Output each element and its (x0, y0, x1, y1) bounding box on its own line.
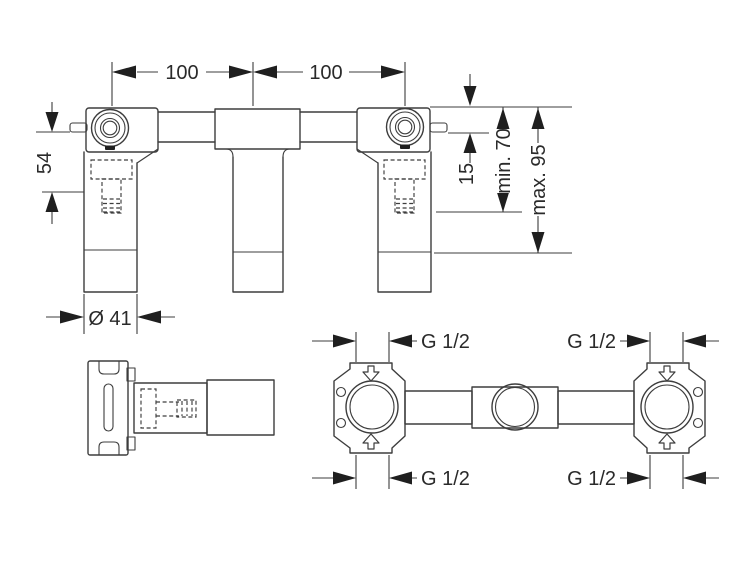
plate-notch-top (99, 361, 119, 374)
arrowhead (627, 472, 650, 485)
screw-hole (694, 388, 703, 397)
thread-label-bottom-right: G 1/2 (567, 468, 616, 490)
plate-notch-bottom (99, 442, 119, 455)
bar-left-segment (405, 391, 472, 424)
right-chamfer (357, 149, 378, 163)
flow-arrow-icon (659, 366, 675, 381)
plan-left-circle-outer (346, 381, 398, 433)
arrowhead (253, 66, 277, 79)
bar-center-block (472, 387, 558, 428)
arrowhead (137, 311, 161, 324)
dim-label-max95: max. 95 (528, 144, 550, 215)
arrowhead (389, 335, 412, 348)
right-valve-nut (387, 109, 424, 146)
left-chamfer (137, 149, 158, 163)
center-tee-block (215, 109, 300, 149)
arrowhead (46, 192, 59, 212)
arrowhead (532, 232, 545, 253)
plan-right-circle-inner (645, 385, 689, 429)
arrowhead (627, 335, 650, 348)
drawing-canvas: 100 100 54 15 min. 70 max. 95 Ø 41 (0, 0, 750, 563)
front-view-dimensions: 100 100 54 15 min. 70 max. 95 Ø 41 (34, 62, 550, 334)
arrowhead (229, 66, 253, 79)
dim-label-100-right: 100 (309, 62, 342, 84)
plan-right-circle-outer (641, 381, 693, 433)
right-nut-tab (400, 145, 410, 150)
center-connection-outer (492, 384, 538, 430)
dim-label-54: 54 (34, 152, 56, 174)
top-extension-lines (112, 62, 405, 106)
crossbar (158, 112, 357, 142)
left-valve-nut (92, 110, 129, 147)
side-hidden-fastener (141, 389, 196, 428)
dim-label-min70: min. 70 (493, 128, 515, 194)
right-pin (430, 123, 447, 132)
dim-label-100-left: 100 (165, 62, 198, 84)
left-pin (70, 123, 87, 132)
bar-right-segment (558, 391, 634, 424)
flow-arrow-icon (363, 434, 379, 449)
right-valve-ring (390, 112, 420, 142)
center-connection-inner (496, 388, 535, 427)
thread-label-top-right: G 1/2 (567, 331, 616, 353)
left-hidden-fastener (91, 160, 132, 213)
thread-label-bottom-left: G 1/2 (421, 468, 470, 490)
right-valve-bore-inner (398, 120, 412, 134)
arrowhead (46, 112, 59, 132)
arrowhead (60, 311, 84, 324)
screw-hole (694, 419, 703, 428)
mounting-plate (88, 361, 128, 455)
arrowhead (464, 133, 477, 153)
arrowhead (464, 86, 477, 106)
screw-hole (337, 388, 346, 397)
side-view (88, 361, 274, 455)
screw-hole (337, 419, 346, 428)
arrowhead (389, 472, 412, 485)
arrowhead (333, 472, 356, 485)
plate-slot (104, 384, 113, 431)
plan-view (334, 363, 705, 453)
plan-left-circle-inner (350, 385, 394, 429)
arrowhead (532, 108, 545, 129)
right-leg (378, 152, 431, 292)
arrowhead (112, 66, 136, 79)
left-nut-tab (105, 146, 115, 151)
center-leg (233, 157, 283, 292)
plan-view-dimensions: G 1/2 G 1/2 G 1/2 G 1/2 (312, 331, 719, 490)
thread-label-top-left: G 1/2 (421, 331, 470, 353)
arrowhead (333, 335, 356, 348)
arrowhead (683, 472, 706, 485)
arrowhead (381, 66, 405, 79)
left-valve-ring (95, 113, 125, 143)
left-valve-bore-inner (103, 121, 117, 135)
arrowhead (683, 335, 706, 348)
plan-dim-stems (312, 341, 719, 478)
technical-drawing: 100 100 54 15 min. 70 max. 95 Ø 41 (0, 0, 750, 563)
right-hidden-fastener (384, 160, 425, 213)
center-leg-notches (226, 149, 290, 157)
dim-label-15: 15 (456, 163, 478, 185)
front-view (36, 107, 572, 292)
dim-label-diameter: Ø 41 (88, 308, 131, 330)
left-leg (84, 152, 137, 292)
body-rear-section (207, 380, 274, 435)
flow-arrow-icon (363, 366, 379, 381)
arrowhead (497, 108, 510, 129)
flow-arrow-icon (659, 434, 675, 449)
